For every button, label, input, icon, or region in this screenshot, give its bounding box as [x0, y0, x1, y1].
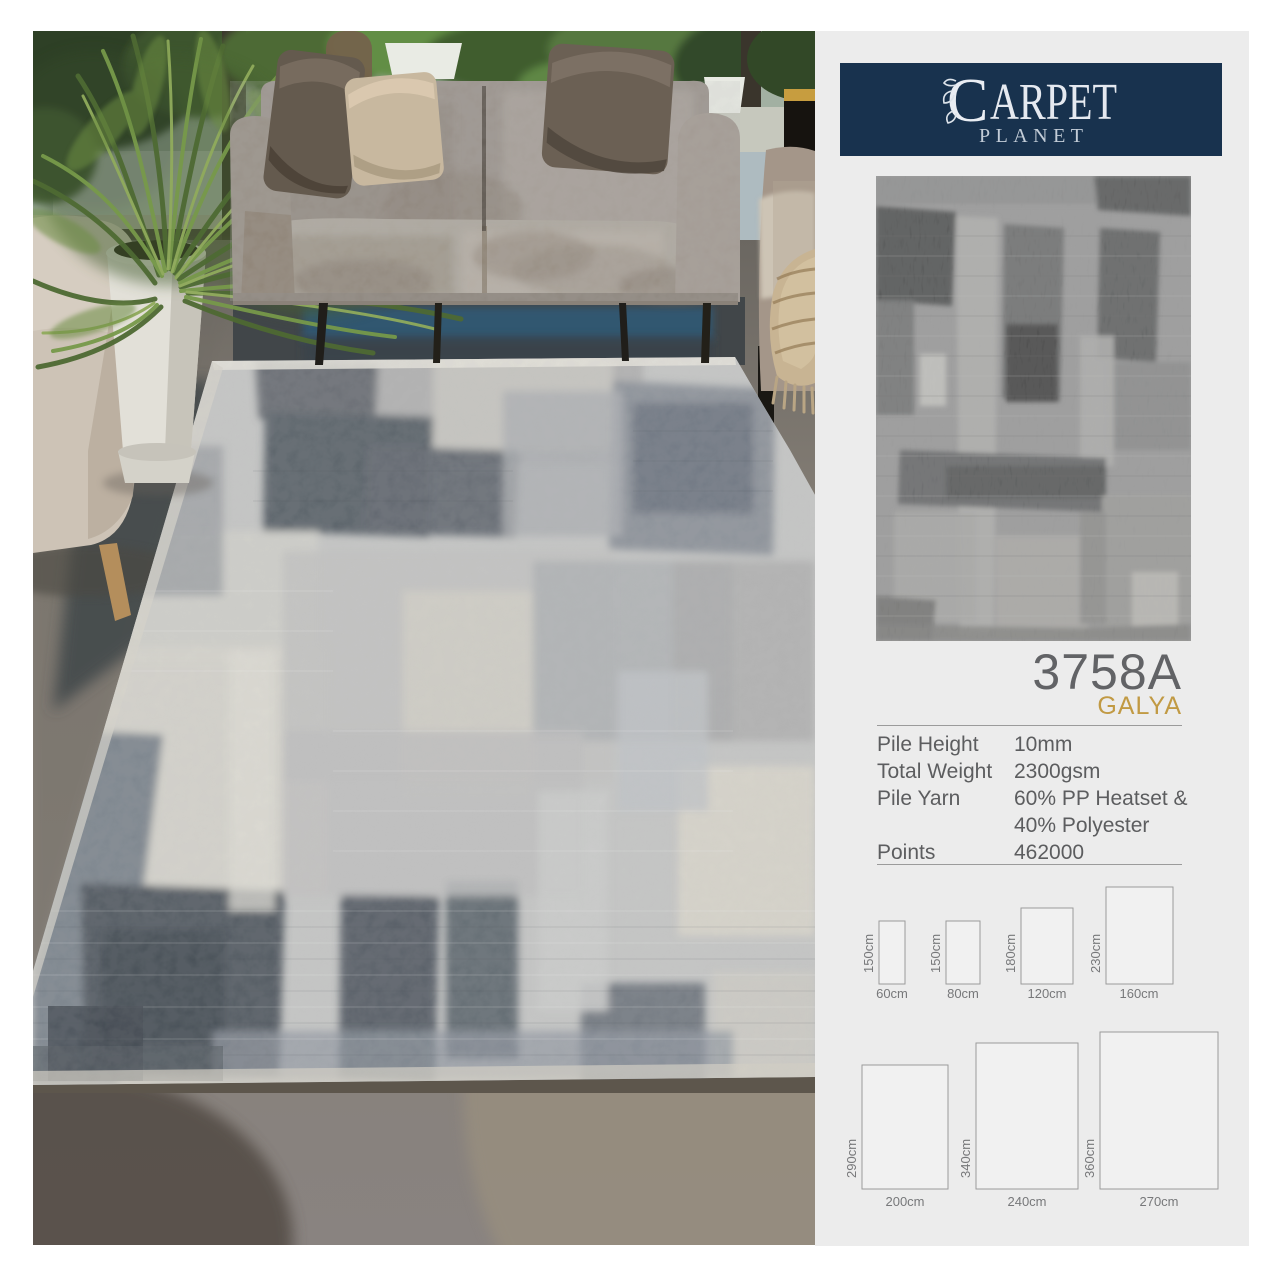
svg-text:270cm: 270cm: [1139, 1194, 1178, 1209]
svg-text:150cm: 150cm: [928, 934, 943, 973]
svg-text:340cm: 340cm: [958, 1139, 973, 1178]
svg-text:120cm: 120cm: [1027, 986, 1066, 1001]
svg-text:290cm: 290cm: [844, 1139, 859, 1178]
svg-text:200cm: 200cm: [885, 1194, 924, 1209]
svg-text:230cm: 230cm: [1088, 934, 1103, 973]
svg-text:160cm: 160cm: [1119, 986, 1158, 1001]
svg-text:240cm: 240cm: [1007, 1194, 1046, 1209]
svg-text:ARPET: ARPET: [990, 74, 1117, 131]
svg-text:150cm: 150cm: [861, 934, 876, 973]
svg-text:80cm: 80cm: [947, 986, 979, 1001]
svg-text:60cm: 60cm: [876, 986, 908, 1001]
svg-text:180cm: 180cm: [1003, 934, 1018, 973]
svg-text:360cm: 360cm: [1082, 1139, 1097, 1178]
